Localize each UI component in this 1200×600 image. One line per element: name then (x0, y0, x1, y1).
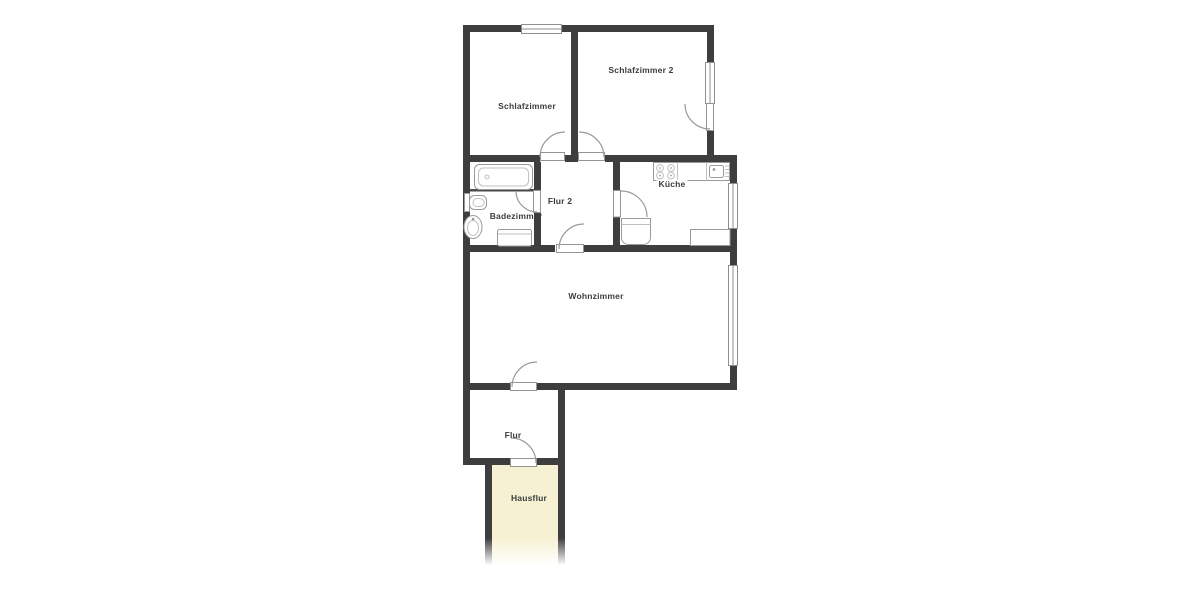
toilet-icon (465, 194, 487, 212)
washbasin-icon (464, 216, 482, 239)
window-schlafzimmer2-right (706, 63, 715, 104)
door-schlafzimmer2-balcony (685, 104, 714, 131)
room-label-wohnzimmer: Wohnzimmer (568, 292, 623, 301)
hausflur-floor (492, 465, 558, 565)
washing-machine-icon (498, 230, 532, 247)
door-wohnzimmer-flur (511, 362, 538, 391)
bathtub-icon (475, 165, 533, 190)
kitchen-counter-icon (691, 230, 731, 246)
window-wohnzimmer-right (729, 266, 738, 366)
door-schlafzimmer2 (579, 132, 605, 161)
door-badezimmer (516, 191, 541, 213)
room-label-flur-2: Flur 2 (548, 197, 572, 206)
window-schlafzimmer-top (522, 25, 562, 34)
room-label-flur: Flur (505, 431, 522, 440)
room-label-schlafzimmer: Schlafzimmer (498, 102, 556, 111)
room-label-kueche: Küche (657, 180, 688, 189)
door-flur2-wohnzimmer (557, 224, 585, 253)
door-entrance (511, 438, 537, 467)
room-label-badezimmer: Badezimmer (490, 212, 543, 221)
room-label-hausflur: Hausflur (511, 494, 547, 503)
door-schlafzimmer (540, 132, 565, 161)
door-kueche (614, 191, 648, 218)
window-kueche-right (729, 184, 738, 229)
floor-plan-canvas: Schlafzimmer Schlafzimmer 2 Badezimmer F… (0, 0, 1200, 600)
refrigerator-icon (622, 219, 651, 245)
room-label-schlafzimmer-2: Schlafzimmer 2 (608, 66, 673, 75)
